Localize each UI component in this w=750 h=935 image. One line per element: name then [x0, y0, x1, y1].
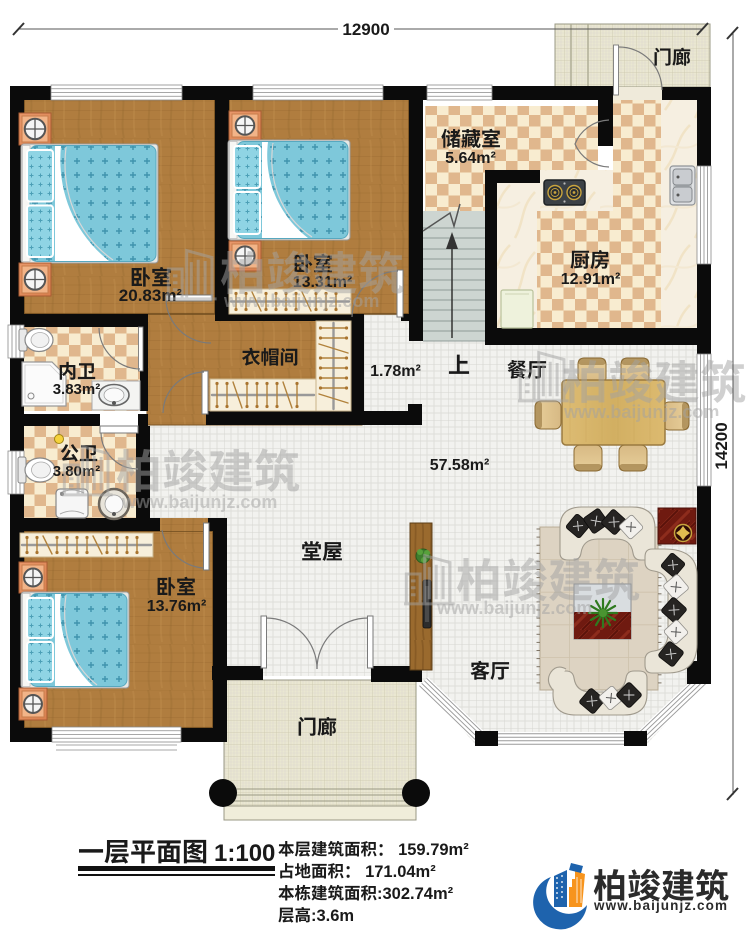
svg-text:1:100: 1:100 [214, 840, 275, 867]
svg-text:： 171.04m²: ： 171.04m² [344, 863, 436, 881]
svg-text:www.baijunjz.com: www.baijunjz.com [121, 492, 277, 512]
svg-text::302.74m²: :302.74m² [377, 885, 454, 903]
svg-text:12.91m²: 12.91m² [561, 271, 621, 288]
svg-text:www.baijunjz.com: www.baijunjz.com [563, 402, 719, 422]
svg-text:： 159.79m²: ： 159.79m² [377, 841, 469, 859]
svg-text:12900: 12900 [342, 20, 389, 39]
svg-text::3.6m: :3.6m [311, 907, 354, 925]
svg-text:13.76m²: 13.76m² [147, 598, 207, 615]
svg-text:www.baijunjz.com: www.baijunjz.com [223, 291, 379, 311]
svg-text:14200: 14200 [712, 422, 731, 469]
svg-text:www.baijunjz.com: www.baijunjz.com [436, 598, 592, 618]
svg-text:www.baijunjz.com: www.baijunjz.com [593, 898, 728, 913]
svg-text:1.78m²: 1.78m² [370, 363, 421, 380]
svg-text:5.64m²: 5.64m² [445, 150, 496, 167]
svg-text:3.83m²: 3.83m² [53, 381, 101, 398]
svg-text:57.58m²: 57.58m² [430, 457, 490, 474]
